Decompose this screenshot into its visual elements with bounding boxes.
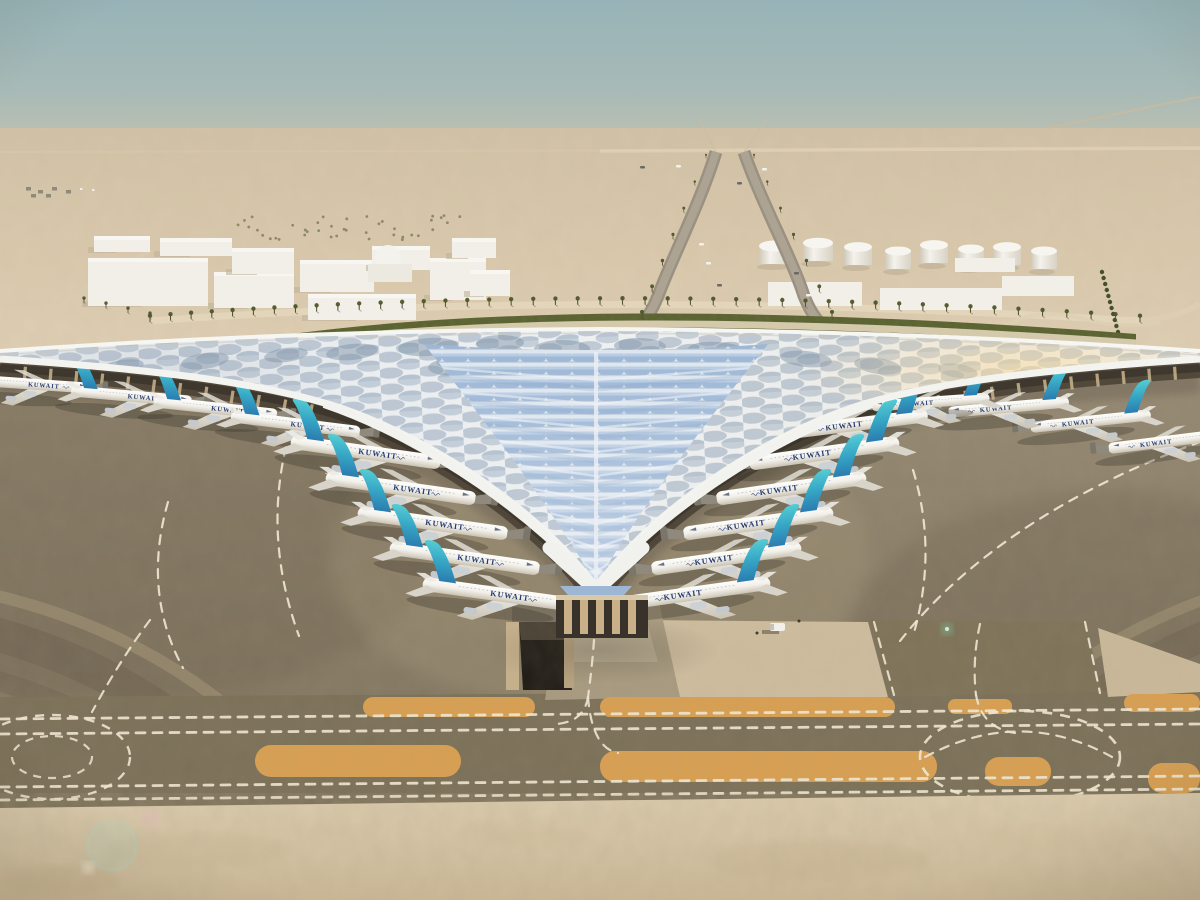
- vignette: [0, 0, 1200, 900]
- airport-aerial-render: KUWAITKUWAITKUWAITKUWAITKUWAITKUWAITKUWA…: [0, 0, 1200, 900]
- scene-svg: KUWAITKUWAITKUWAITKUWAITKUWAITKUWAITKUWA…: [0, 0, 1200, 900]
